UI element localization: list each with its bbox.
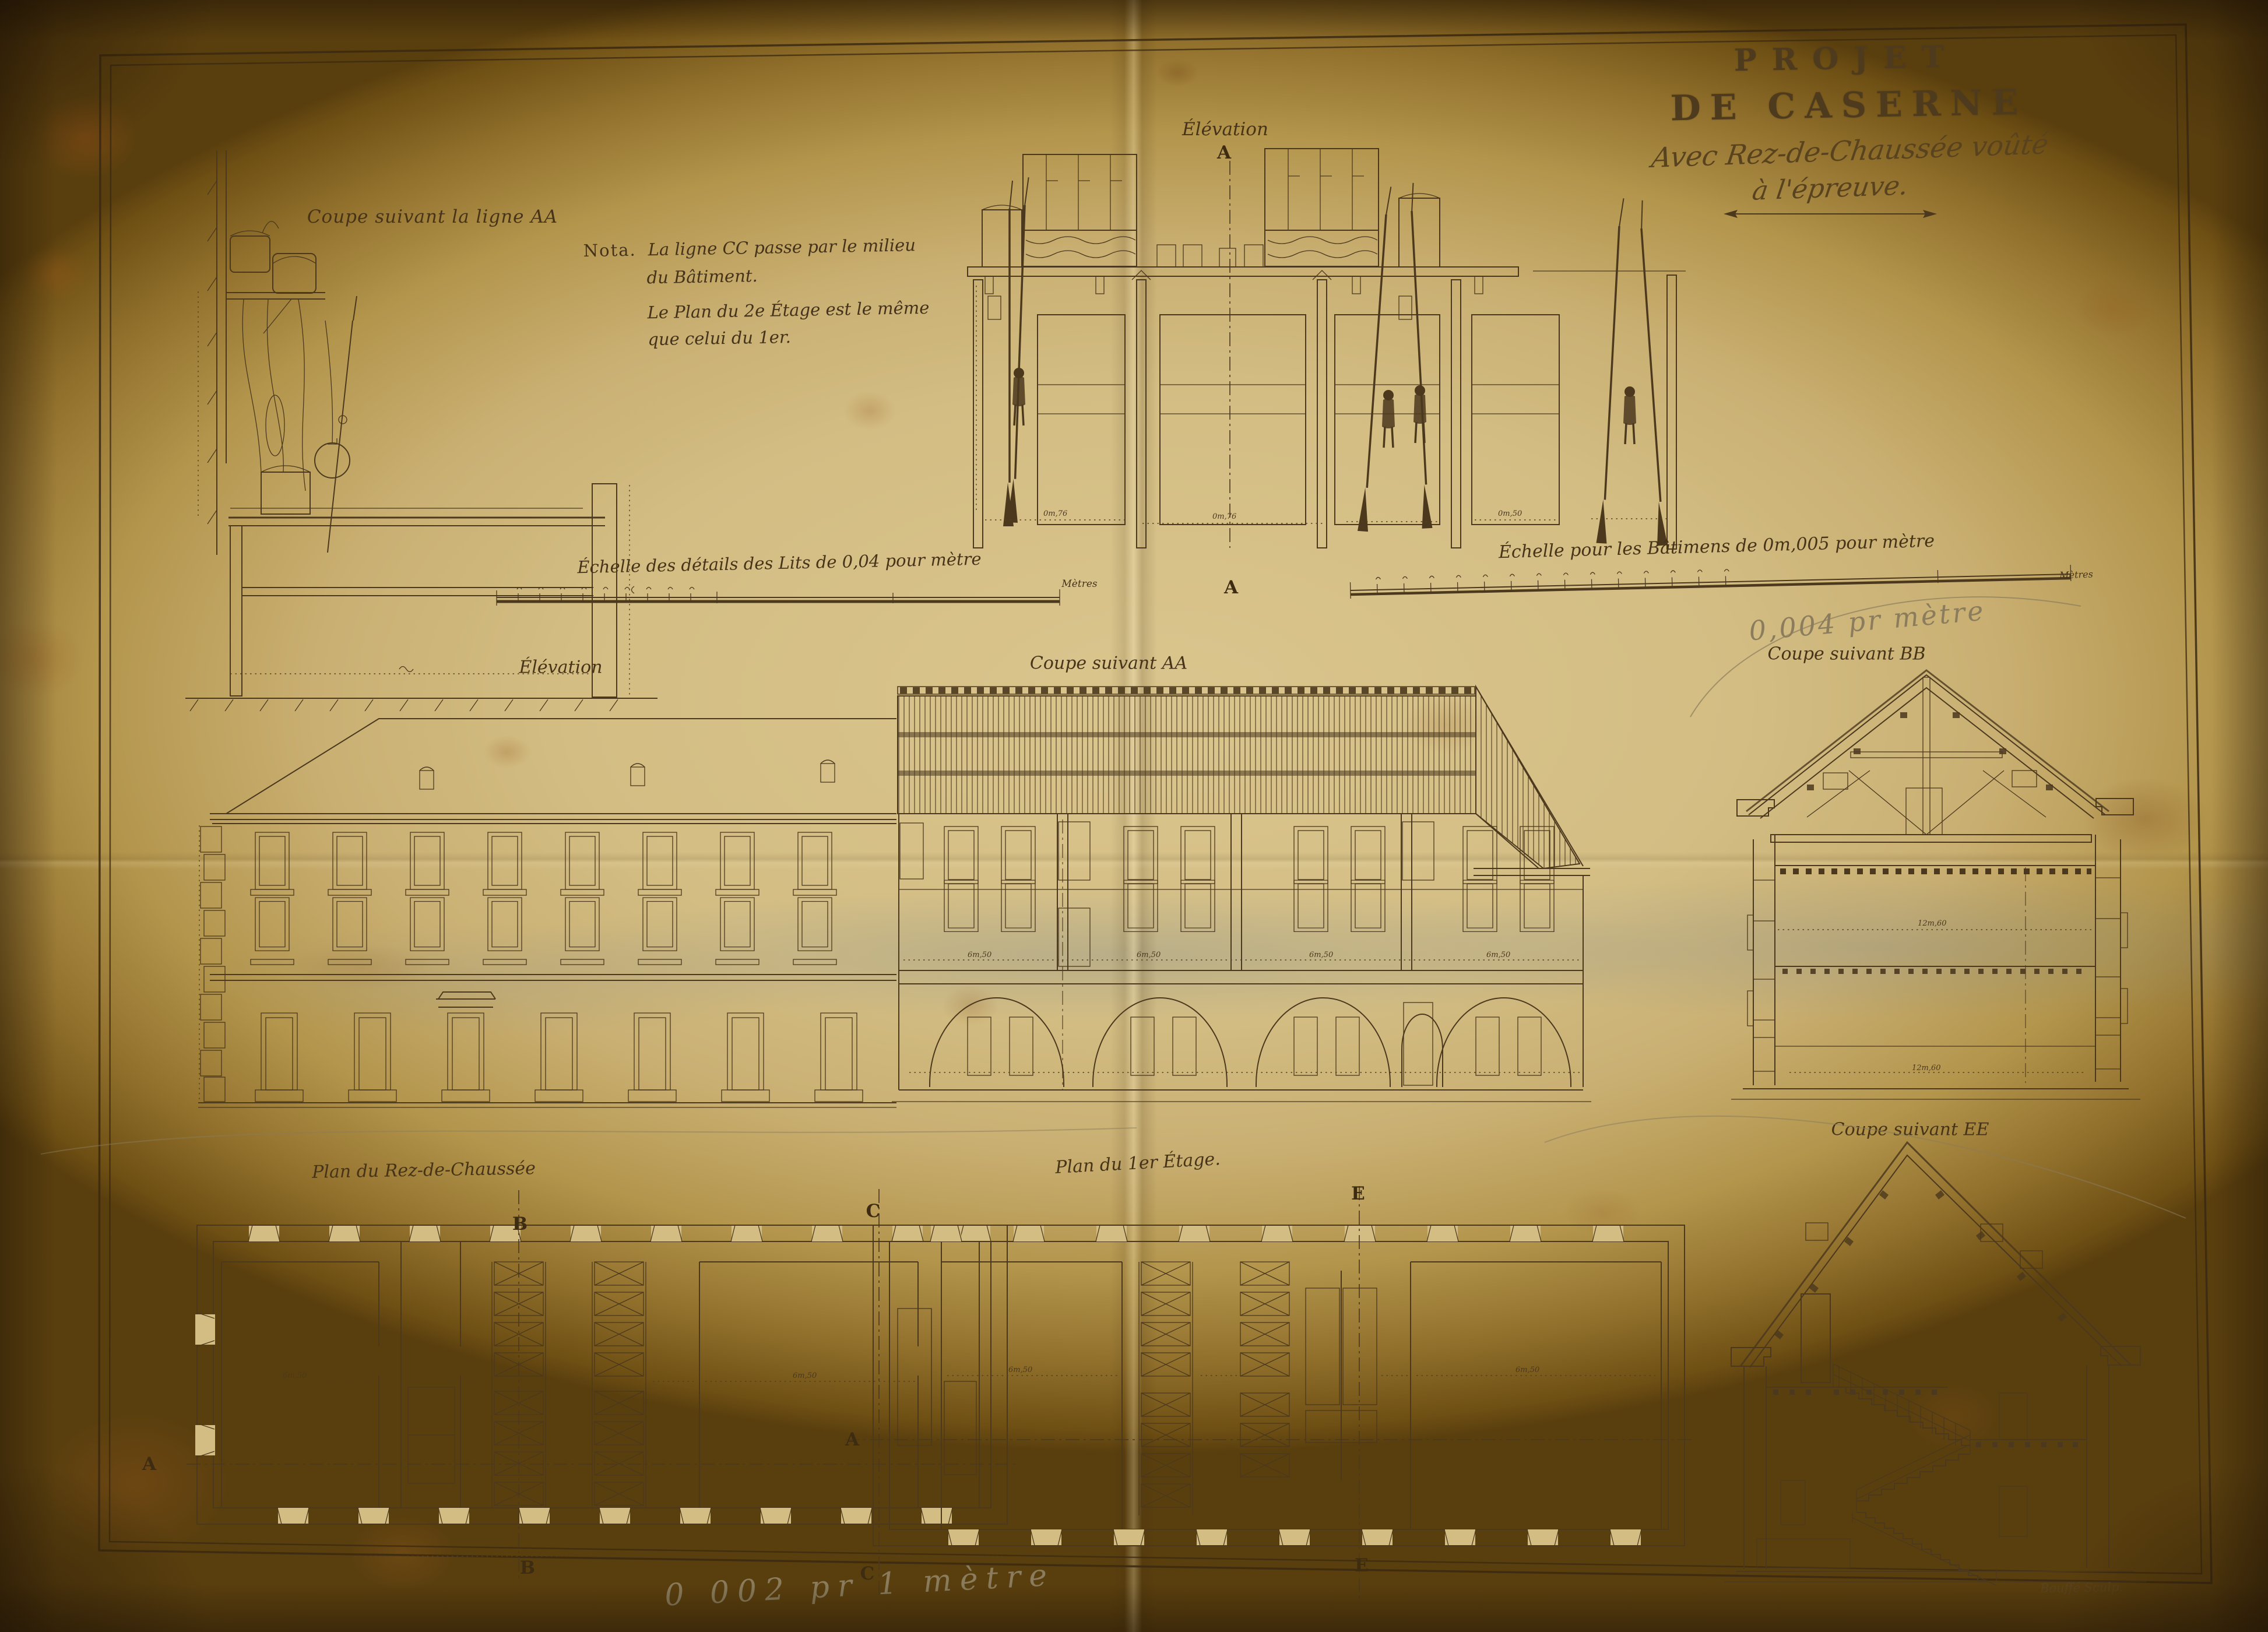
- dim-bed-width-2: 0m,76: [1212, 512, 1236, 521]
- coupe-aa-drawing: 6m,50 6m,50 6m,50 6m,50: [886, 676, 1603, 1113]
- marker-b-bottom: B: [520, 1557, 535, 1578]
- nota-line2: du Bâtiment.: [646, 263, 929, 287]
- title-underline-arrow: [1722, 205, 1938, 223]
- nota-label: Nota.: [583, 240, 637, 261]
- marker-e-bottom: E: [1355, 1555, 1369, 1576]
- label-coupe-aa: Coupe suivant AA: [1030, 653, 1187, 674]
- pencil-curve-plans: [35, 1107, 1142, 1177]
- label-elevation-detail: Élévation: [1182, 119, 1268, 140]
- dim-bay-4: 6m,50: [1486, 951, 1510, 959]
- nota-block: Nota. La ligne CC passe par le milieu du…: [583, 235, 930, 350]
- title-line4: à l'épreuve.: [1750, 170, 1910, 206]
- bed-row-center: [1240, 1262, 1289, 1477]
- marker-a-left: A: [142, 1454, 156, 1475]
- label-coupe-ligne-aa: Coupe suivant la ligne AA: [307, 206, 558, 227]
- dim-room-rdc-left: 6m,50: [283, 1371, 307, 1380]
- label-elevation-building: Élévation: [519, 657, 602, 678]
- dim-total-width: 12m,60: [1918, 919, 1947, 928]
- coupe-bb-drawing: 12m,60 12m,60: [1720, 664, 2151, 1113]
- bed-row-fold: [1141, 1262, 1190, 1507]
- building-elevation-drawing: [175, 699, 898, 1113]
- dim-bed-width: 0m,76: [1043, 509, 1067, 518]
- dim-total-width-2: 12m,60: [1912, 1064, 1941, 1072]
- label-metres-left: Mètres: [1061, 578, 1097, 590]
- label-coupe-bb: Coupe suivant BB: [1768, 644, 1926, 664]
- drawing-sheet: Coupe suivant la ligne AA Nota. La ligne…: [0, 0, 2268, 1632]
- marker-e-top: E: [1351, 1183, 1365, 1204]
- dim-bed-spacing: 0m,50: [1498, 509, 1522, 518]
- dim-room-1er-right: 6m,50: [1515, 1366, 1539, 1374]
- nota-line1: La ligne CC passe par le milieu: [648, 235, 916, 259]
- marker-b-top: B: [512, 1214, 528, 1234]
- scale-bar-beds: [490, 574, 1078, 615]
- engraver-signature: Bouffé Sculp.: [2040, 1580, 2123, 1595]
- title-line2: DE CASERNE: [1670, 82, 2028, 129]
- dim-bay-3: 6m,50: [1309, 951, 1333, 959]
- dim-room-rdc-right: 6m,50: [793, 1371, 817, 1380]
- bed-row-2: [595, 1262, 644, 1506]
- marker-a-detail-bottom: A: [1224, 577, 1238, 598]
- nota-line3: Le Plan du 2e Étage est le même: [647, 298, 929, 322]
- dim-bay-1: 6m,50: [968, 951, 991, 959]
- marker-a-detail-top: A: [1217, 142, 1231, 163]
- bed-elevation-drawing: 0m,76 0m,76 0m,50: [950, 140, 1708, 595]
- dim-room-1er-left: 6m,50: [1008, 1366, 1032, 1374]
- dim-bay-2: 6m,50: [1137, 951, 1161, 959]
- marker-a-mid: A: [845, 1429, 859, 1450]
- marker-c-top: C: [866, 1201, 881, 1222]
- plan-1er-drawing: 6m,50 6m,50: [863, 1201, 1696, 1585]
- title-line1: PROJET: [1733, 39, 1960, 79]
